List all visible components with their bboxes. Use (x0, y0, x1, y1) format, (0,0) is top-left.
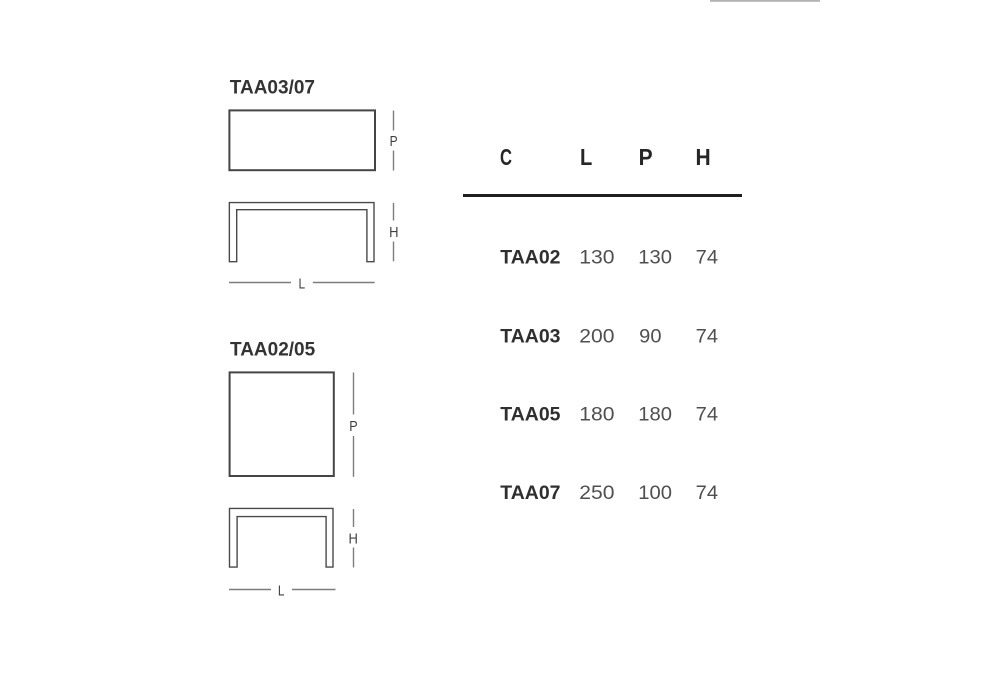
svg-text:L: L (278, 582, 285, 599)
svg-text:180: 180 (638, 404, 672, 425)
svg-text:130: 130 (579, 247, 614, 268)
svg-text:H: H (696, 144, 711, 170)
svg-text:L: L (299, 275, 306, 292)
svg-text:100: 100 (638, 483, 672, 504)
svg-text:P: P (349, 418, 357, 435)
svg-text:H: H (349, 530, 358, 547)
svg-text:TAA03/07: TAA03/07 (230, 78, 315, 99)
svg-text:TAA07: TAA07 (500, 483, 560, 504)
svg-text:TAA03: TAA03 (500, 326, 560, 347)
svg-text:TAA05: TAA05 (500, 404, 561, 425)
svg-text:250: 250 (579, 483, 614, 504)
svg-text:TAA02: TAA02 (500, 247, 560, 268)
svg-text:TAA02/05: TAA02/05 (230, 339, 316, 360)
svg-text:180: 180 (579, 404, 614, 425)
svg-text:200: 200 (579, 326, 614, 347)
svg-text:L: L (580, 144, 592, 170)
svg-text:C: C (500, 144, 512, 170)
svg-text:74: 74 (696, 483, 719, 504)
svg-text:74: 74 (696, 247, 719, 268)
svg-text:90: 90 (639, 326, 661, 347)
svg-text:H: H (389, 224, 398, 241)
svg-text:P: P (639, 144, 653, 170)
svg-text:130: 130 (638, 247, 672, 268)
svg-text:74: 74 (696, 326, 719, 347)
svg-text:P: P (390, 133, 398, 150)
svg-text:74: 74 (696, 404, 719, 425)
